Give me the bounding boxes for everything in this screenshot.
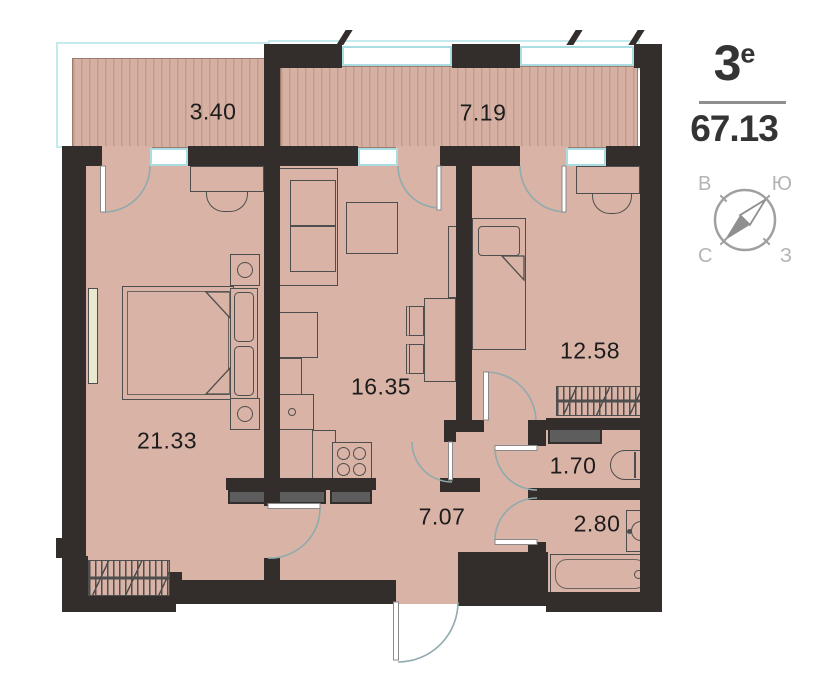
room-area-label: 7.19 (460, 100, 507, 127)
title-divider (699, 101, 786, 104)
floor-plan: 3.40 7.19 21.33 16.35 12.58 1.70 2.80 7.… (0, 0, 816, 700)
apartment-type-title: 3е (664, 38, 804, 88)
room-area-label: 1.70 (550, 453, 597, 480)
compass-rose-icon (698, 174, 792, 266)
room-area-label: 21.33 (137, 428, 197, 455)
room-area-label: 3.40 (190, 99, 237, 126)
room-area-label: 16.35 (351, 374, 411, 401)
apartment-type-suffix: е (740, 38, 754, 68)
door-swing-overlay (0, 0, 816, 700)
compass: В Ю С З (698, 174, 792, 266)
apartment-type-number: 3 (714, 35, 741, 91)
room-area-label: 12.58 (560, 338, 620, 365)
room-area-label: 7.07 (419, 504, 466, 531)
total-area-value: 67.13 (664, 110, 804, 147)
room-area-label: 2.80 (574, 511, 621, 538)
